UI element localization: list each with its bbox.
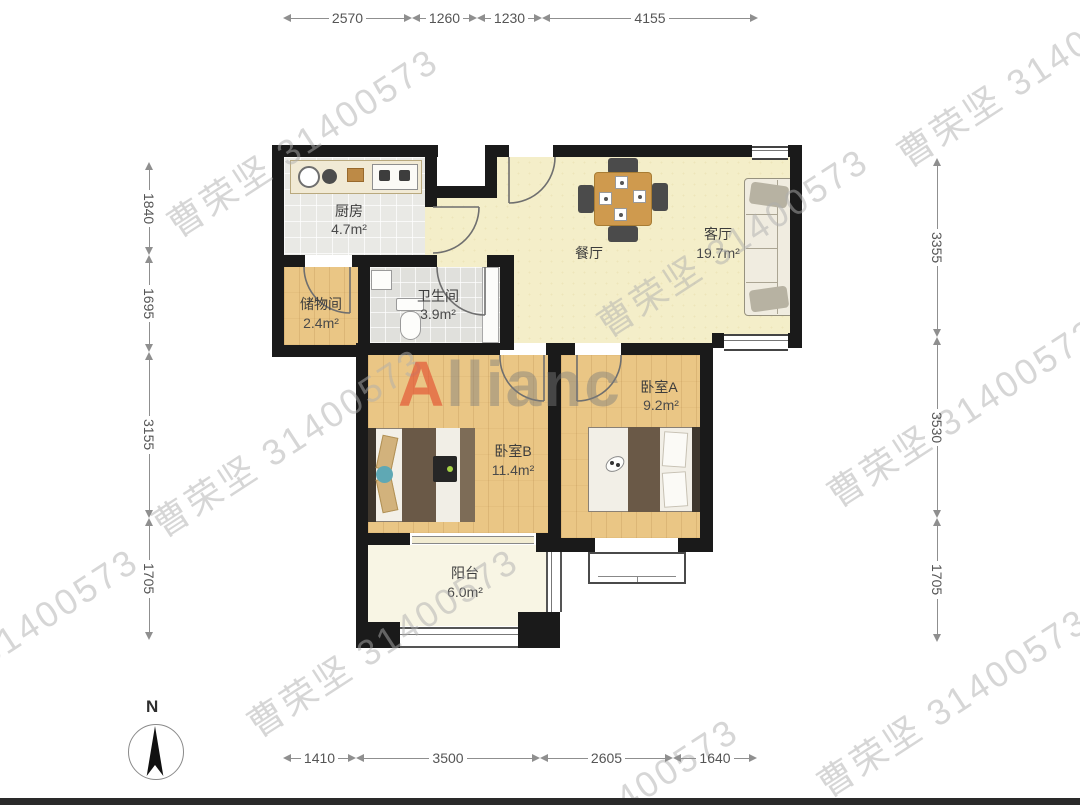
sofa-cushion-line (746, 248, 777, 249)
exterior-notch (437, 157, 485, 186)
wall (356, 533, 410, 545)
dim-top-4: 4155 (542, 10, 758, 26)
stove-burner-icon (399, 170, 410, 181)
dining-chair (608, 226, 638, 242)
dim-right-2: 3530 (928, 337, 946, 518)
agent-watermark: 曹荣坚 31400573 (886, 0, 1080, 178)
dim-right-3: 1705 (928, 518, 946, 642)
glasses-dot (610, 461, 614, 465)
dining-chair (578, 185, 594, 213)
sofa-cushion-line (746, 214, 777, 215)
wall (700, 343, 713, 552)
kitchen-area: 4.7m² (331, 221, 367, 238)
window (752, 146, 788, 160)
plate-dot (619, 213, 623, 217)
bedroom-b-label: 卧室B (494, 443, 531, 460)
dim-left-3: 3155 (140, 352, 158, 518)
wall (788, 333, 802, 348)
bedroom-b-area: 11.4m² (492, 462, 535, 479)
bathroom-area: 3.9m² (420, 306, 456, 323)
bed-b-blanket (402, 428, 436, 522)
dim-bottom-2: 3500 (356, 750, 540, 766)
wall (518, 612, 560, 648)
wall (356, 343, 500, 355)
bed-a-headboard (692, 427, 700, 512)
bedroom-a-label: 卧室A (640, 379, 677, 396)
bathroom-label: 卫生间 (417, 288, 459, 305)
bed-b-headboard (368, 428, 376, 522)
wall (536, 533, 561, 552)
wall (356, 622, 400, 648)
balcony-area: 6.0m² (447, 584, 483, 601)
wall (272, 345, 368, 357)
wall (790, 145, 802, 348)
bed-b-foot (460, 428, 475, 522)
living-label: 客厅 (704, 226, 732, 243)
plate-dot (638, 195, 642, 199)
storage-area: 2.4m² (303, 315, 339, 332)
wall (553, 145, 752, 157)
wall (358, 255, 370, 355)
balcony-side-window (546, 552, 562, 612)
dining-label: 餐厅 (575, 245, 603, 262)
dim-bottom-4: 1640 (673, 750, 757, 766)
dim-bottom-1: 1410 (283, 750, 356, 766)
bed-b-round-pillow (376, 466, 393, 483)
bay-window (588, 552, 686, 584)
storage-label: 储物间 (300, 296, 342, 313)
dim-right-1: 3355 (928, 158, 946, 337)
bed-a-pillow (662, 471, 688, 508)
wall (272, 145, 284, 357)
wall (500, 262, 514, 350)
bed-a-blanket (628, 427, 660, 512)
wall (546, 343, 575, 355)
bottom-edge-bar (0, 798, 1080, 805)
bed-a-pillow (662, 431, 688, 468)
balcony-railing-window (400, 627, 518, 648)
kitchen-pot-icon (322, 169, 337, 184)
sliding-door-track (412, 536, 534, 544)
plate-dot (620, 181, 624, 185)
dim-top-1: 2570 (283, 10, 412, 26)
glasses-dot (616, 463, 620, 467)
wall (356, 355, 368, 622)
dim-top-3: 1230 (477, 10, 542, 26)
kitchen-sink-icon (298, 166, 320, 188)
stove-burner-icon (379, 170, 390, 181)
floorplan-canvas: 厨房 4.7m² 储物间 2.4m² 卫生间 3.9m² 餐厅 客厅 19.7m… (0, 0, 1080, 805)
dim-left-1: 1840 (140, 162, 158, 255)
dining-chair (652, 183, 668, 211)
shower-panel (482, 267, 499, 343)
sofa-cushion-line (746, 282, 777, 283)
window (724, 334, 788, 351)
agent-watermark: 曹荣坚 31400573 (0, 533, 148, 748)
wall (485, 145, 509, 157)
wall (555, 538, 595, 552)
laptop-dot (447, 466, 453, 472)
wall (678, 538, 713, 552)
wall (272, 145, 438, 157)
plate-dot (604, 197, 608, 201)
wall (712, 333, 724, 348)
dim-left-2: 1695 (140, 255, 158, 352)
north-label: N (146, 697, 158, 717)
balcony-label: 阳台 (451, 565, 479, 582)
kitchen-label: 厨房 (335, 203, 363, 220)
dim-bottom-3: 2605 (540, 750, 673, 766)
living-area: 19.7m² (696, 245, 740, 262)
dim-top-2: 1260 (412, 10, 477, 26)
washbasin (371, 270, 392, 290)
kitchen-board-icon (347, 168, 364, 182)
toilet-bowl (400, 311, 421, 340)
wall (272, 255, 305, 267)
laptop-icon (433, 456, 457, 482)
agent-watermark: 曹荣坚 31400573 (816, 303, 1080, 518)
wall (548, 355, 561, 538)
wall (433, 186, 497, 198)
bedroom-a-area: 9.2m² (643, 397, 679, 414)
dim-left-4: 1705 (140, 518, 158, 640)
